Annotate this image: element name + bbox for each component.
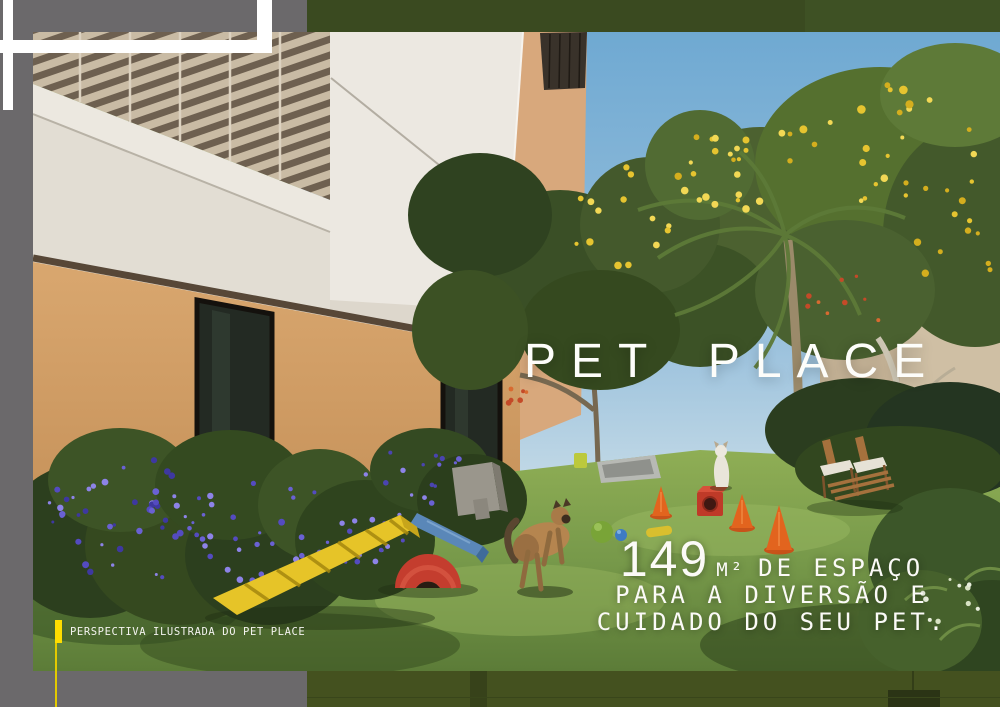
yellow-accent-bar bbox=[55, 620, 62, 643]
caption-text: PERSPECTIVA ILUSTRADA DO PET PLACE bbox=[70, 620, 305, 638]
brochure-page: PET PLACE 149 M² DE ESPAÇO PARA A DIVERS… bbox=[0, 0, 1000, 707]
area-stats: 149 M² DE ESPAÇO PARA A DIVERSÃO E CUIDA… bbox=[592, 536, 952, 636]
photo-caption: PERSPECTIVA ILUSTRADA DO PET PLACE bbox=[55, 620, 305, 643]
area-value: 149 bbox=[620, 536, 709, 582]
bottom-bar bbox=[0, 671, 1000, 707]
bottom-bar-green bbox=[307, 671, 1000, 707]
area-unit: M² bbox=[716, 559, 745, 581]
white-frame-vertical-corner bbox=[257, 0, 272, 41]
stats-line-1: 149 M² DE ESPAÇO bbox=[592, 536, 952, 582]
bottom-bar-seam bbox=[912, 671, 914, 690]
tree-sign bbox=[574, 453, 587, 468]
stats-line-1-text: DE ESPAÇO bbox=[758, 554, 924, 582]
yellow-guide-line bbox=[55, 643, 57, 707]
white-frame-horizontal bbox=[0, 40, 272, 53]
bottom-bar-dark-block-1 bbox=[470, 671, 487, 707]
page-title: PET PLACE bbox=[524, 334, 940, 389]
stats-line-3: CUIDADO DO SEU PET. bbox=[592, 609, 952, 636]
stats-line-2: PARA A DIVERSÃO E bbox=[592, 582, 952, 609]
bottom-bar-line bbox=[307, 697, 1000, 698]
top-green-bar-right bbox=[805, 0, 1000, 32]
top-green-bar bbox=[307, 0, 805, 32]
bottom-bar-dark-block-2 bbox=[888, 690, 940, 707]
white-frame-vertical-left bbox=[3, 0, 13, 110]
